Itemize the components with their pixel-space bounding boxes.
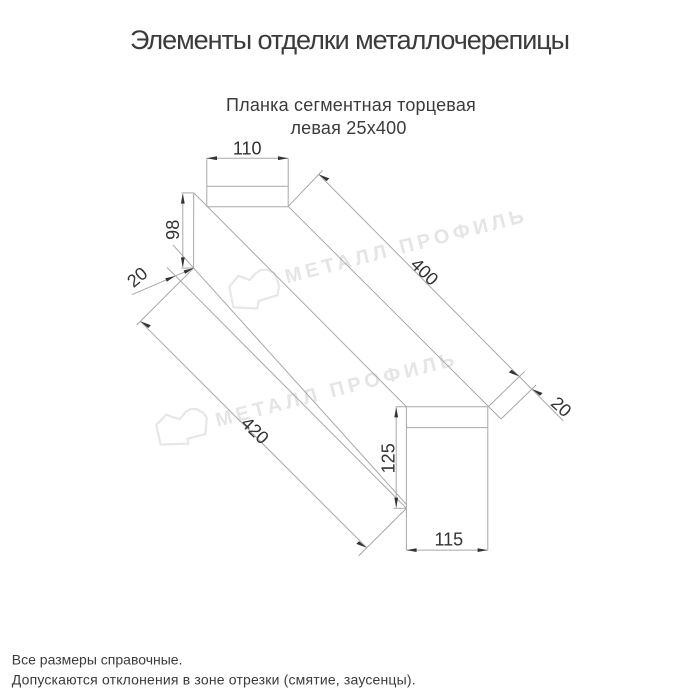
svg-text:125: 125 xyxy=(379,443,399,473)
svg-text:98: 98 xyxy=(163,220,183,240)
svg-text:Элементы отделки металлочерепи: Элементы отделки металлочерепицы xyxy=(130,25,569,55)
svg-text:110: 110 xyxy=(233,139,262,159)
svg-text:Планка сегментная торцевая: Планка сегментная торцевая xyxy=(226,95,476,115)
svg-text:115: 115 xyxy=(434,530,463,550)
svg-text:левая 25х400: левая 25х400 xyxy=(290,118,406,138)
svg-text:Допускаются отклонения в зоне: Допускаются отклонения в зоне отрезки (с… xyxy=(12,671,416,687)
svg-text:Все размеры справочные.: Все размеры справочные. xyxy=(12,652,183,668)
